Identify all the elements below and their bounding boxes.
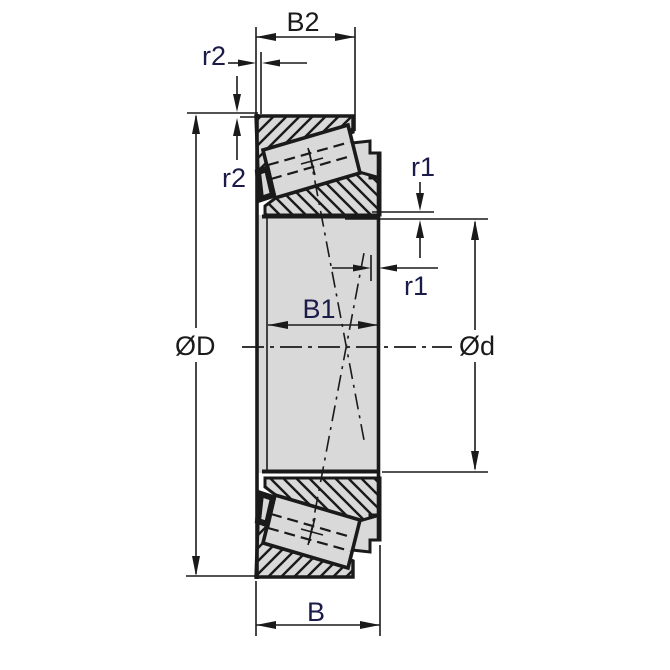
- r2v-arrow-down: [233, 94, 241, 112]
- r2h-arrow-right: [262, 60, 280, 67]
- dim-label-b2: B2: [286, 7, 319, 37]
- dim-label-b: B: [307, 597, 325, 627]
- b2-arrow-right: [335, 33, 355, 41]
- od-arrow-up: [192, 114, 200, 134]
- dim-label-outer-diameter: ØD: [175, 331, 216, 361]
- dim-label-r2-side: r2: [222, 163, 246, 193]
- dim-label-bore-diameter: Ød: [459, 331, 495, 361]
- cup-rib-gap-bottom: [258, 494, 273, 524]
- dim-label-r2-top: r2: [202, 41, 226, 71]
- r2v-arrow-up: [233, 118, 241, 136]
- id-arrow-down: [471, 451, 479, 471]
- bore-surface: [256, 215, 380, 473]
- id-arrow-up: [471, 220, 479, 240]
- dim-label-r1-side: r1: [404, 271, 428, 301]
- dim-label-b1: B1: [302, 294, 335, 324]
- r1v-arrow-down: [416, 193, 424, 211]
- cup-rib-gap-top: [258, 169, 273, 199]
- b-arrow-right: [360, 621, 380, 629]
- b-arrow-left: [256, 621, 276, 629]
- bearing-drawing: B2 r2 r2 r1 r1 B1 ØD Ød B: [0, 0, 670, 670]
- dim-label-r1-top: r1: [411, 152, 435, 182]
- r2h-arrow-left: [238, 60, 256, 67]
- r1h-arrow-left: [379, 265, 397, 272]
- r1v-arrow-up: [416, 220, 424, 238]
- od-arrow-down: [192, 556, 200, 576]
- b2-arrow-left: [256, 33, 276, 41]
